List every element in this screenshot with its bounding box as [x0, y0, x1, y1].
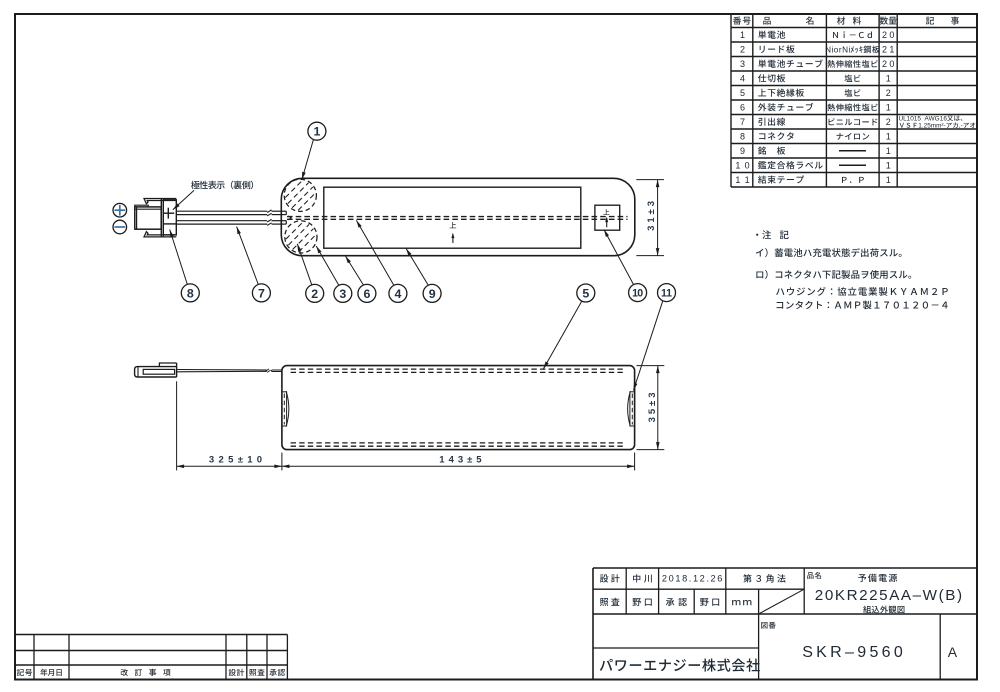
svg-text:20: 20: [882, 59, 894, 69]
svg-text:31±3: 31±3: [646, 201, 657, 231]
svg-text:A: A: [948, 644, 958, 660]
svg-text:,-: ,-: [959, 123, 963, 130]
svg-text:35±3: 35±3: [647, 393, 658, 423]
svg-text:2: 2: [886, 88, 891, 98]
svg-text:8: 8: [187, 286, 194, 300]
svg-text:11: 11: [661, 287, 672, 299]
svg-text:4: 4: [395, 287, 402, 301]
svg-text:2: 2: [311, 287, 318, 301]
svg-text:1: 1: [886, 103, 891, 113]
svg-text:9: 9: [429, 287, 436, 301]
svg-text:143±5: 143±5: [439, 455, 482, 466]
svg-text:10: 10: [632, 287, 643, 299]
svg-text:3: 3: [740, 59, 745, 69]
svg-text:1: 1: [886, 146, 891, 156]
svg-text:5: 5: [582, 286, 589, 300]
svg-text:1: 1: [886, 74, 891, 84]
svg-text:2: 2: [740, 45, 745, 55]
svg-text:325±10: 325±10: [209, 455, 262, 466]
svg-text:UL1015: UL1015: [899, 116, 922, 123]
svg-text:2018.12.26: 2018.12.26: [662, 574, 723, 584]
svg-text:11: 11: [735, 175, 749, 185]
svg-text:7: 7: [740, 117, 745, 127]
svg-text:1: 1: [314, 125, 321, 139]
svg-text:AWG16: AWG16: [925, 116, 948, 123]
svg-text:2: 2: [886, 117, 891, 127]
svg-text:4: 4: [740, 74, 745, 84]
svg-text:1: 1: [886, 131, 891, 141]
svg-text:10: 10: [735, 160, 749, 170]
svg-text:1: 1: [740, 30, 745, 40]
svg-text:20: 20: [882, 30, 894, 40]
svg-text:1: 1: [886, 175, 891, 185]
svg-text:SKR–9560: SKR–9560: [802, 644, 903, 661]
svg-text:NiorNi: NiorNi: [825, 46, 850, 55]
svg-text:1: 1: [886, 160, 891, 170]
svg-text:9: 9: [740, 146, 745, 156]
svg-text:6: 6: [740, 103, 745, 113]
svg-text:3: 3: [339, 287, 346, 301]
svg-text:8: 8: [740, 131, 745, 141]
svg-text:1.25mm²-: 1.25mm²-: [918, 123, 945, 130]
svg-text:6: 6: [364, 287, 371, 301]
svg-text:7: 7: [258, 286, 265, 300]
svg-text:21: 21: [882, 45, 894, 55]
svg-text:20KR225AA–W(B): 20KR225AA–W(B): [815, 587, 962, 604]
svg-text:5: 5: [740, 88, 745, 98]
